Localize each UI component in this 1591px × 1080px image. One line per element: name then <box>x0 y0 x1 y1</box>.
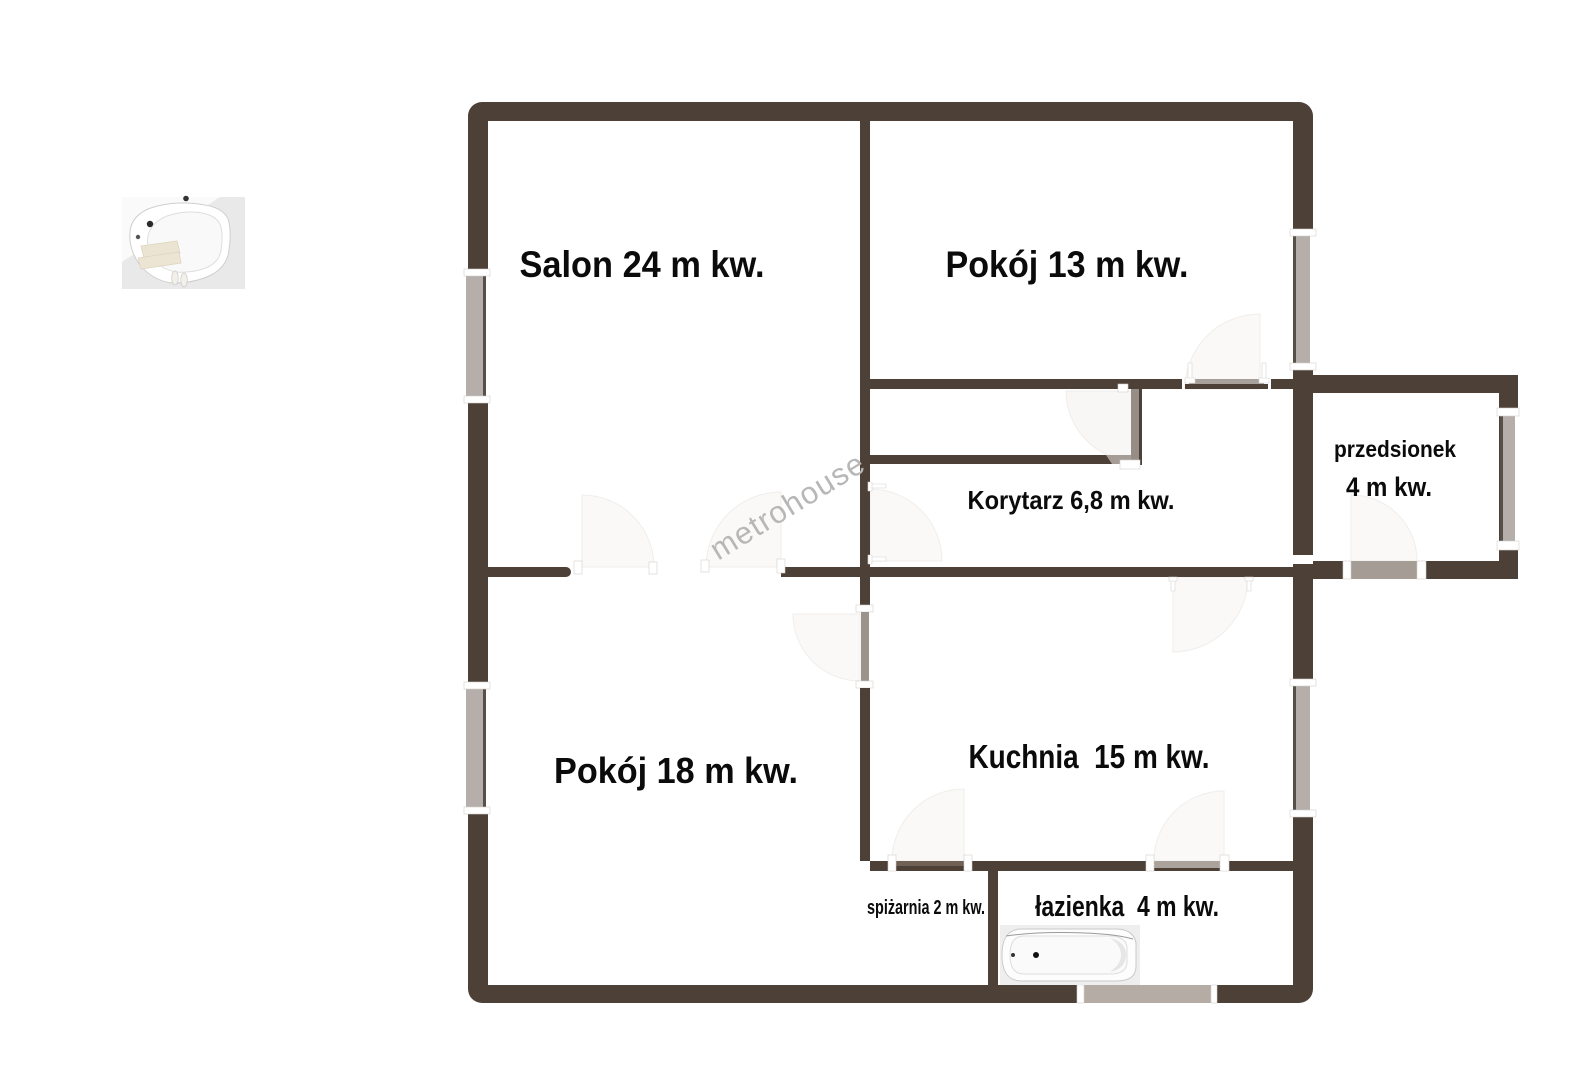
svg-text:Salon 24 m kw.: Salon 24 m kw. <box>520 244 765 285</box>
svg-text:4 m kw.: 4 m kw. <box>1346 472 1432 502</box>
svg-text:Kuchnia 15 m kw.: Kuchnia 15 m kw. <box>969 738 1210 775</box>
svg-text:Pokój 13 m kw.: Pokój 13 m kw. <box>946 244 1189 285</box>
svg-text:Pokój 18 m kw.: Pokój 18 m kw. <box>554 750 798 791</box>
svg-text:przedsionek: przedsionek <box>1334 436 1456 462</box>
svg-text:Korytarz 6,8 m kw.: Korytarz 6,8 m kw. <box>968 485 1175 515</box>
svg-text:spiżarnia 2 m kw.: spiżarnia 2 m kw. <box>867 897 985 919</box>
svg-text:łazienka 4 m kw.: łazienka 4 m kw. <box>1035 891 1219 923</box>
